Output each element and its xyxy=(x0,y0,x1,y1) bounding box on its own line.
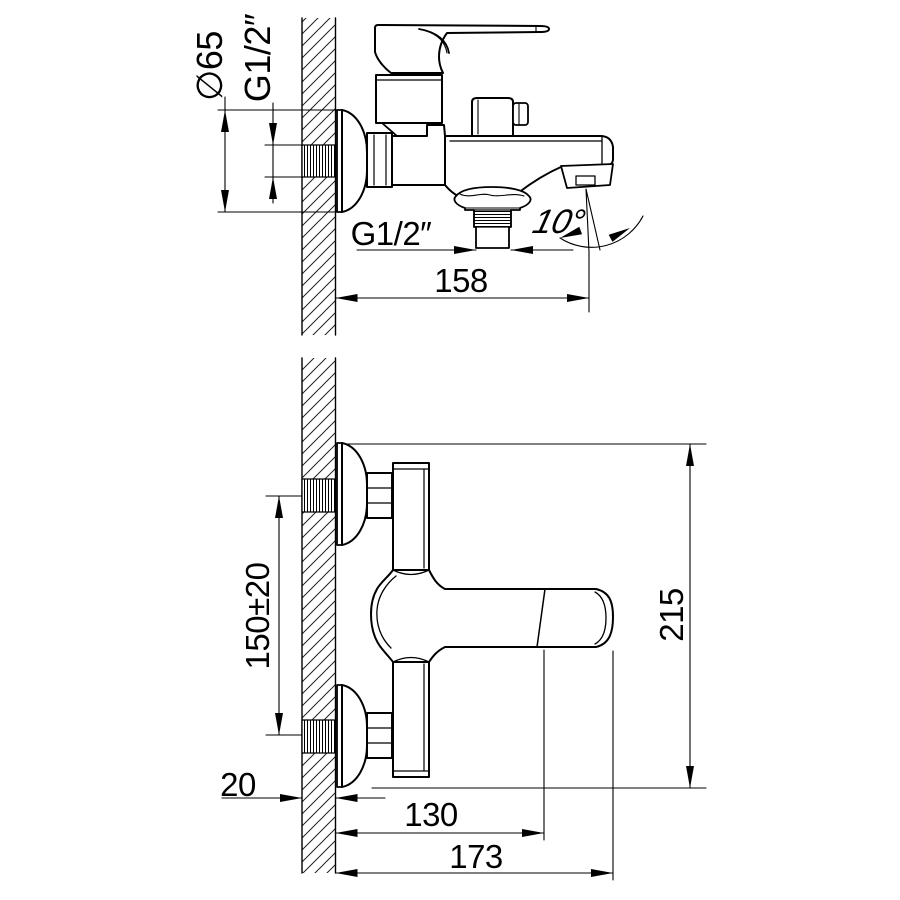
diverter-knob xyxy=(472,98,528,136)
technical-drawing-page: ∅65 G1/2″ G1/2″ 10° 158 xyxy=(0,0,900,900)
label-inlet-thread: G1/2″ xyxy=(237,13,278,102)
lower-nut xyxy=(367,713,392,758)
label-shower-outlet-thread: G1/2″ xyxy=(351,215,433,252)
front-view-dimensions xyxy=(222,444,706,880)
shower-outlet xyxy=(454,187,530,248)
label-overall-height: 215 xyxy=(653,588,690,642)
upper-wall-thread xyxy=(302,479,336,512)
label-spout-angle: 10° xyxy=(529,203,588,240)
label-spout-reach: 158 xyxy=(434,262,488,299)
shower-thread xyxy=(474,210,511,227)
front-view: 150±20 215 20 130 173 xyxy=(220,358,706,880)
upper-nut xyxy=(367,473,392,518)
mixer-body-front xyxy=(371,570,613,662)
upper-pipe xyxy=(393,463,429,570)
faucet-dimension-drawing: ∅65 G1/2″ G1/2″ 10° 158 xyxy=(0,0,900,900)
lower-escutcheon xyxy=(337,685,367,787)
upper-escutcheon xyxy=(337,443,367,545)
side-view: ∅65 G1/2″ G1/2″ 10° 158 xyxy=(189,13,643,335)
wall-hatch-front xyxy=(302,358,336,873)
label-overall-reach: 173 xyxy=(449,838,503,875)
label-wall-thickness: 20 xyxy=(220,766,256,803)
escutcheon-flange xyxy=(337,110,367,212)
lower-pipe xyxy=(393,662,429,777)
lower-wall-thread xyxy=(302,720,336,753)
mounting-nut xyxy=(367,133,392,187)
label-reach-to-handle-grip: 130 xyxy=(404,796,458,833)
spout-outlet-lip xyxy=(561,164,613,188)
label-flange-diameter: ∅65 xyxy=(189,31,230,101)
handle-lever xyxy=(375,25,549,73)
label-mount-centers: 150±20 xyxy=(239,562,276,669)
wall-thread xyxy=(302,145,336,177)
